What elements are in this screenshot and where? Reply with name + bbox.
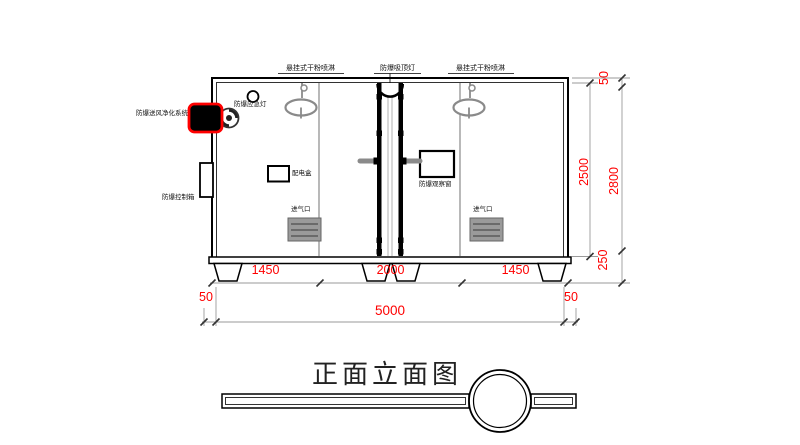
section-circle-icon (469, 370, 531, 432)
power-box-icon (268, 166, 289, 182)
label-control-box: 防爆控制箱 (162, 194, 195, 201)
dim-bottom-right-bay: 1450 (488, 263, 543, 277)
label-sprinkler-left: 悬挂式干粉喷淋 (277, 65, 344, 73)
dim-right-bottom-offset: 250 (596, 240, 610, 280)
dim-bottom-total: 5000 (358, 303, 422, 318)
air-inlet-vent-right (470, 218, 503, 241)
dim-bottom-left-offset: 50 (193, 290, 219, 304)
label-emergency-lamp: 防爆应急灯 (234, 101, 267, 108)
label-sprinkler-right: 悬挂式干粉喷淋 (447, 65, 514, 73)
label-air-inlet-right: 进气口 (473, 206, 493, 213)
label-air-inlet-left: 进气口 (291, 206, 311, 213)
drawing-title: 正面立面图 (312, 354, 462, 391)
dim-bottom-middle-bay: 2000 (363, 263, 418, 277)
label-ceiling-lamp: 防爆吸顶灯 (374, 65, 421, 73)
dim-right-top-offset: 50 (597, 65, 611, 91)
dim-right-total-height: 2800 (607, 151, 621, 211)
dim-bottom-right-offset: 50 (558, 290, 584, 304)
control-box-icon (200, 163, 213, 197)
purification-system-icon (189, 104, 239, 132)
air-inlet-vent-left (288, 218, 321, 241)
dim-bottom-left-bay: 1450 (238, 263, 293, 277)
label-observation-window: 防爆观察窗 (419, 181, 452, 188)
label-power-box: 配电盒 (292, 170, 312, 177)
dim-right-inner-height: 2500 (577, 142, 591, 202)
label-purification-system: 防爆送风净化系统 (136, 110, 188, 117)
drawing-canvas: 悬挂式干粉喷淋 防爆吸顶灯 悬挂式干粉喷淋 防爆应急灯 防爆送风净化系统 防爆控… (0, 0, 800, 445)
observation-window-icon (420, 151, 454, 177)
